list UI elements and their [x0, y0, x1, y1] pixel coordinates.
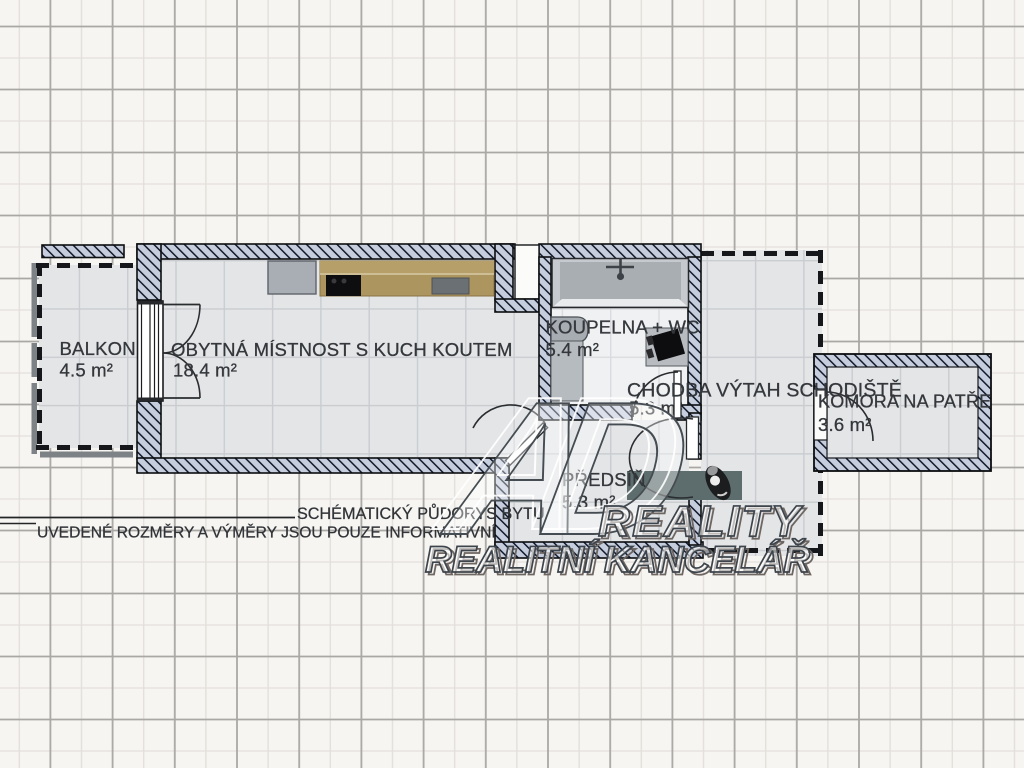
svg-text:KOUPELNA + WC: KOUPELNA + WC — [546, 317, 700, 338]
svg-text:3.6 m²: 3.6 m² — [818, 414, 872, 435]
svg-text:4.5 m²: 4.5 m² — [60, 360, 114, 381]
svg-text:18.4 m²: 18.4 m² — [173, 360, 237, 381]
svg-text:BALKON: BALKON — [60, 338, 136, 359]
svg-text:REALITNÍ KANCELÁŘ: REALITNÍ KANCELÁŘ — [425, 538, 810, 580]
svg-text:OBYTNÁ MÍSTNOST S KUCH KOUTEM: OBYTNÁ MÍSTNOST S KUCH KOUTEM — [171, 339, 513, 360]
svg-text:KOMORA NA PATŘE: KOMORA NA PATŘE — [818, 392, 991, 412]
